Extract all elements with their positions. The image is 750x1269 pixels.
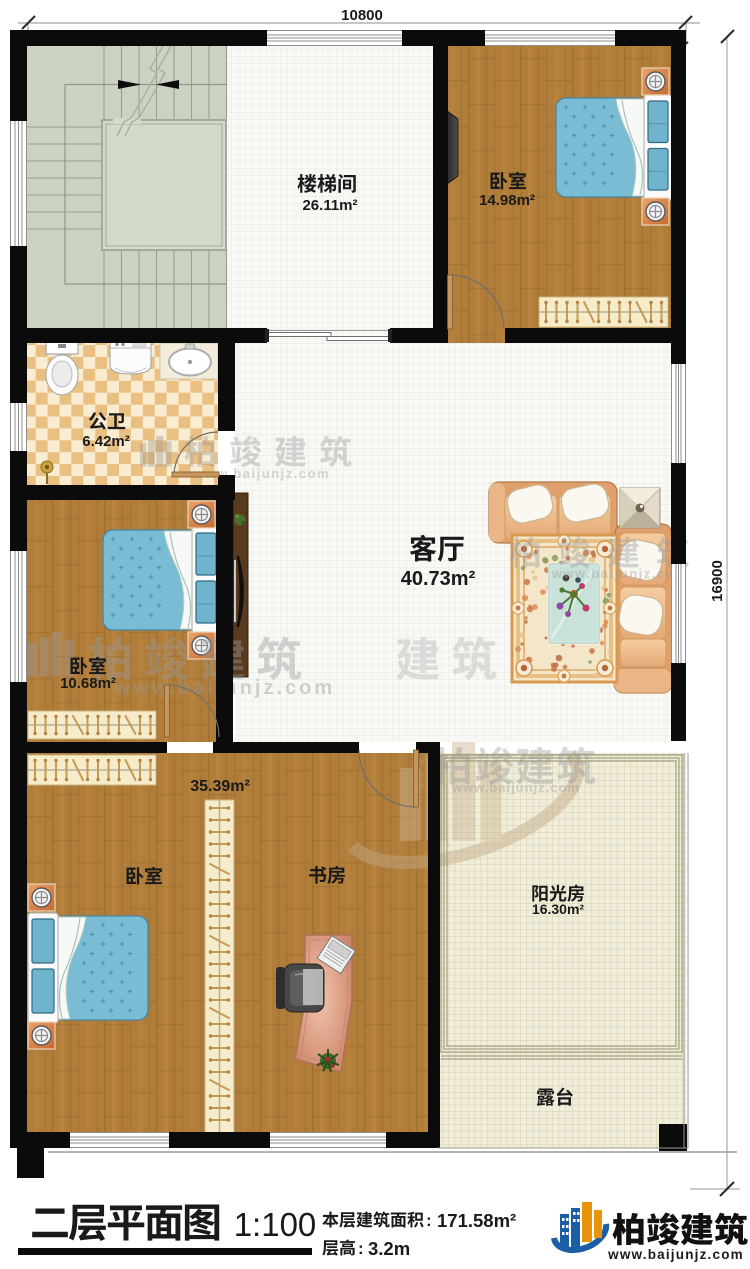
- svg-text:10800: 10800: [341, 7, 383, 24]
- svg-text:40.73m²: 40.73m²: [401, 568, 476, 590]
- svg-text:3.2m: 3.2m: [368, 1238, 410, 1259]
- svg-text:6.42m²: 6.42m²: [82, 433, 130, 450]
- svg-text:14.98m²: 14.98m²: [479, 192, 535, 209]
- svg-text:www.baijunjz.com: www.baijunjz.com: [551, 566, 688, 581]
- svg-text:16.30m²: 16.30m²: [532, 901, 584, 917]
- svg-text:10.68m²: 10.68m²: [60, 675, 116, 692]
- svg-text:16900: 16900: [709, 560, 726, 602]
- svg-text:1:100: 1:100: [234, 1206, 317, 1243]
- svg-text:35.39m²: 35.39m²: [190, 778, 250, 795]
- svg-text:www.baijunjz.com: www.baijunjz.com: [607, 1247, 744, 1262]
- svg-text::: :: [426, 1211, 432, 1230]
- svg-text:171.58m²: 171.58m²: [437, 1210, 516, 1231]
- svg-text:° www.baijunjz.com: ° www.baijunjz.com: [95, 677, 335, 699]
- svg-text::: :: [358, 1239, 364, 1258]
- svg-text:www.baijunjz.com: www.baijunjz.com: [451, 780, 580, 795]
- svg-text:26.11m²: 26.11m²: [302, 197, 357, 214]
